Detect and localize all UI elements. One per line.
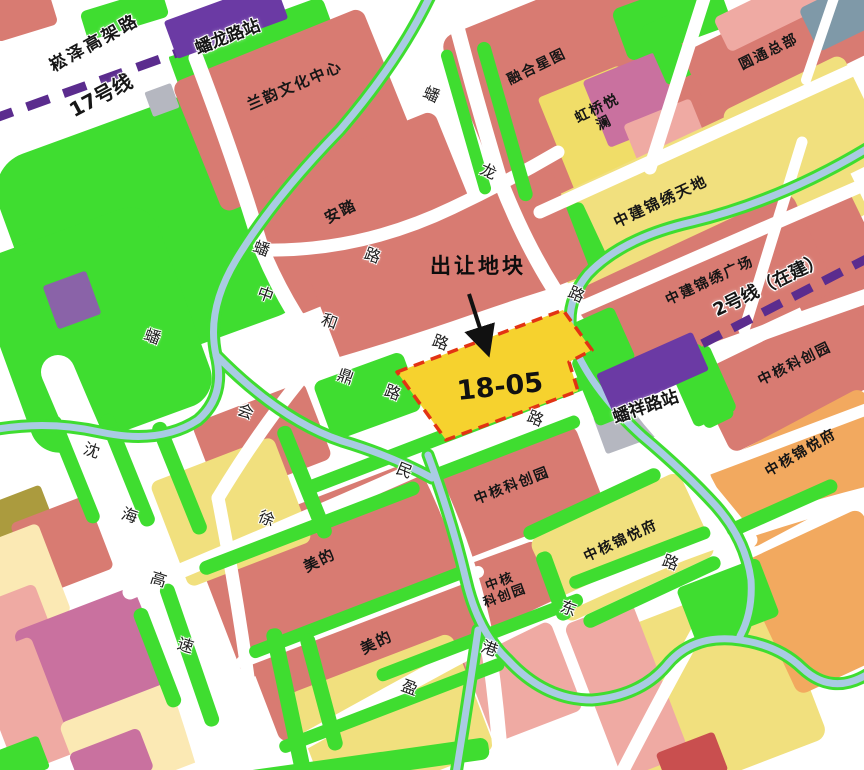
map-canvas [0, 0, 864, 770]
callout-title: 出让地块 [430, 254, 526, 278]
land-parcel-map: 崧泽高架路 17号线 蟠龙路站 2号线（在建） 蟠祥路站 兰韵文化中心 安踏 融… [0, 0, 864, 770]
